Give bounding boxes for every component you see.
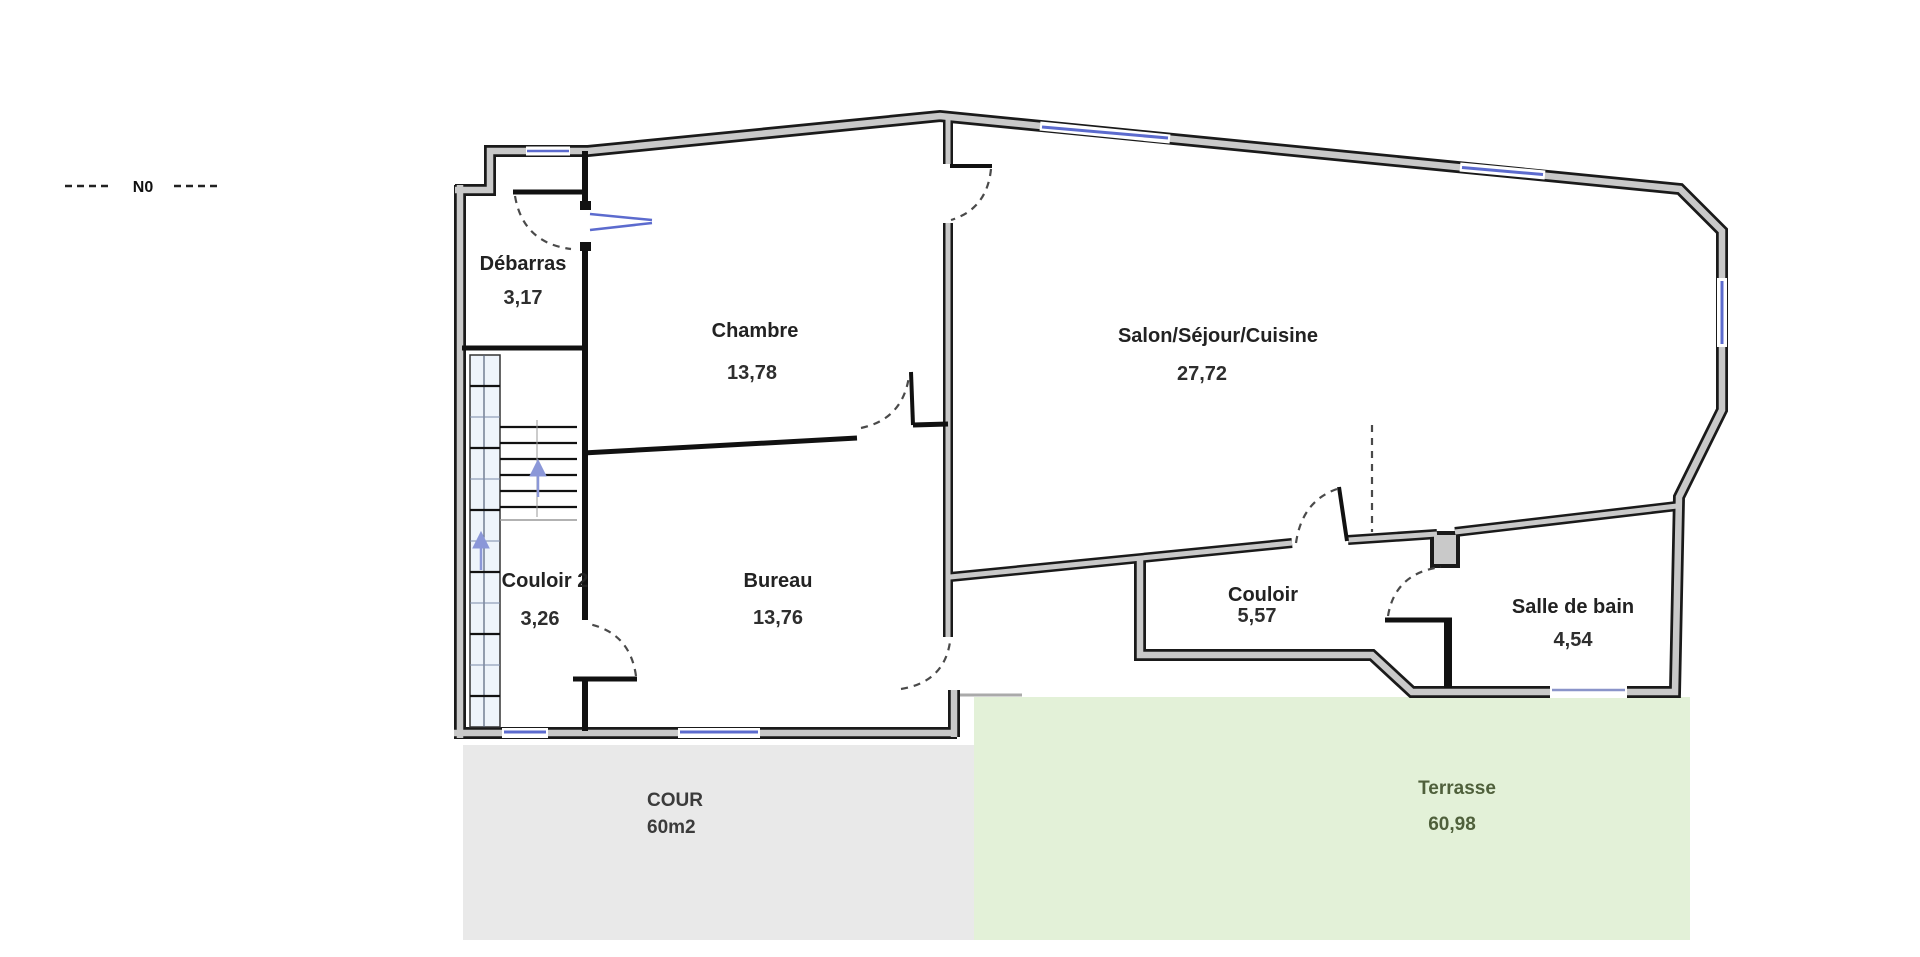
door-leaves — [573, 166, 1452, 679]
interior-thick-walls-edge — [948, 118, 1677, 637]
exterior-walls-edge — [454, 116, 1722, 738]
floor-plan-page: N0 Débarras 3,17 Chambre 13,78 Salon/Séj… — [0, 0, 1920, 957]
room-label-chambre: Chambre — [712, 320, 799, 342]
room-area-couloir: 5,57 — [1238, 605, 1277, 627]
room-area-couloir2: 3,26 — [521, 608, 560, 630]
room-area-salon: 27,72 — [1177, 363, 1227, 385]
door-swing-arcs — [515, 169, 1441, 689]
cour-area — [463, 745, 974, 940]
cour-label: COUR — [647, 790, 703, 811]
windows — [502, 126, 1722, 733]
sdb-door-block-core — [1434, 535, 1456, 564]
cour-area-value: 60m2 — [647, 817, 696, 838]
interior-walls — [462, 151, 1448, 731]
room-label-debarras: Débarras — [480, 253, 567, 275]
north-label: N0 — [133, 179, 154, 196]
room-area-chambre: 13,78 — [727, 362, 777, 384]
terrasse-area — [974, 697, 1690, 940]
room-label-couloir: Couloir — [1228, 584, 1298, 606]
room-area-debarras: 3,17 — [504, 287, 543, 309]
interior-thick-walls-core — [948, 118, 1677, 637]
room-label-couloir2: Couloir 2 — [502, 570, 589, 592]
room-area-sdb: 4,54 — [1554, 629, 1594, 651]
room-label-salon: Salon/Séjour/Cuisine — [1118, 325, 1318, 347]
exterior-walls-core — [454, 116, 1722, 738]
room-labels: Débarras 3,17 Chambre 13,78 Salon/Séjour… — [480, 253, 1634, 651]
floor-plan-drawing: N0 Débarras 3,17 Chambre 13,78 Salon/Séj… — [0, 0, 1920, 957]
room-area-bureau: 13,76 — [753, 607, 803, 629]
room-label-bureau: Bureau — [744, 570, 813, 592]
terrasse-area-value: 60,98 — [1428, 814, 1476, 835]
terrasse-label: Terrasse — [1418, 778, 1496, 799]
room-label-sdb: Salle de bain — [1512, 596, 1634, 618]
north-indicator: N0 — [65, 179, 221, 196]
staircase — [470, 355, 577, 727]
entry-door — [580, 201, 652, 251]
